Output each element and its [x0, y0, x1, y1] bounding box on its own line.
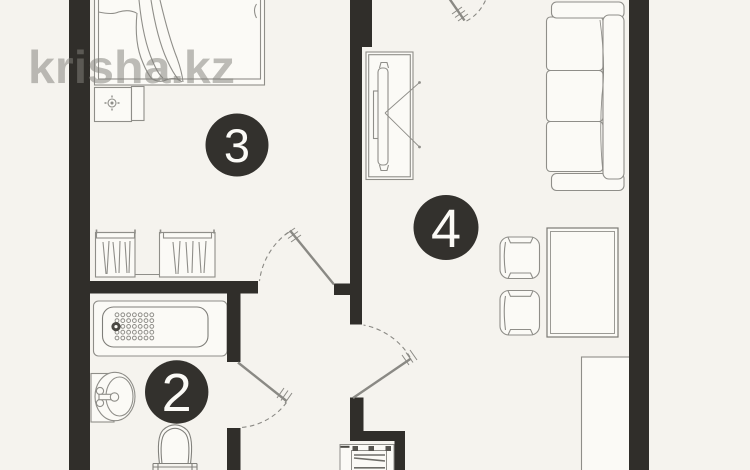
svg-text:4: 4 [431, 199, 461, 259]
svg-text:2: 2 [162, 363, 192, 423]
svg-text:krisha.kz: krisha.kz [28, 41, 235, 93]
svg-text:3: 3 [224, 119, 250, 172]
